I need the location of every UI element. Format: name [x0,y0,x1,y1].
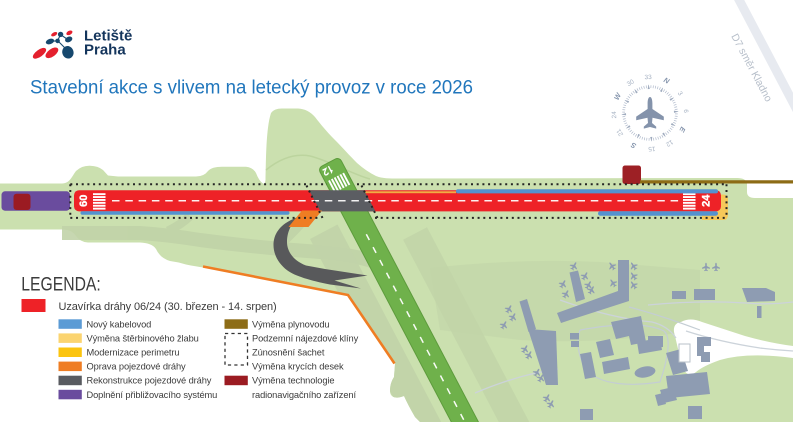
svg-text:24: 24 [701,194,713,207]
svg-text:Zúnosnění šachet: Zúnosnění šachet [252,348,325,358]
svg-text:Výměna štěrbinového žlabu: Výměna štěrbinového žlabu [87,333,199,343]
svg-text:24: 24 [611,111,618,119]
svg-text:S: S [629,140,638,150]
svg-text:Podzemní nájezdové klíny: Podzemní nájezdové klíny [252,333,359,343]
svg-text:60: 60 [78,195,90,207]
svg-text:LEGENDA:: LEGENDA: [21,274,101,296]
svg-text:15: 15 [648,145,656,152]
svg-text:Modernizace perimetru: Modernizace perimetru [87,348,180,358]
svg-text:N: N [662,75,671,86]
svg-text:radionavigačního zařízení: radionavigačního zařízení [252,390,356,400]
svg-text:12: 12 [664,138,674,148]
svg-text:Oprava pojezdové dráhy: Oprava pojezdové dráhy [87,362,187,372]
svg-text:21: 21 [615,127,625,137]
svg-text:Výměna technologie: Výměna technologie [252,376,334,386]
svg-text:Nový kabelovod: Nový kabelovod [87,319,152,329]
svg-text:30: 30 [626,78,636,88]
svg-text:E: E [677,125,687,134]
svg-text:Výměna plynovodu: Výměna plynovodu [252,319,329,329]
svg-text:Výměna krycích desek: Výměna krycích desek [252,362,344,372]
svg-text:W: W [612,90,624,101]
svg-text:Stavební akce s vlivem na lete: Stavební akce s vlivem na letecký provoz… [30,77,473,99]
svg-text:6: 6 [682,109,689,113]
svg-text:D7 směr Kladno: D7 směr Kladno [728,32,774,104]
svg-text:Rekonstrukce pojezdové dráhy: Rekonstrukce pojezdové dráhy [87,376,212,386]
svg-text:Praha: Praha [84,42,126,59]
svg-text:3: 3 [676,90,684,97]
svg-text:Doplnění přibližovacího systém: Doplnění přibližovacího systému [87,390,218,400]
svg-text:33: 33 [644,74,652,81]
svg-text:Uzavírka dráhy 06/24 (30. břez: Uzavírka dráhy 06/24 (30. březen - 14. s… [59,301,277,313]
